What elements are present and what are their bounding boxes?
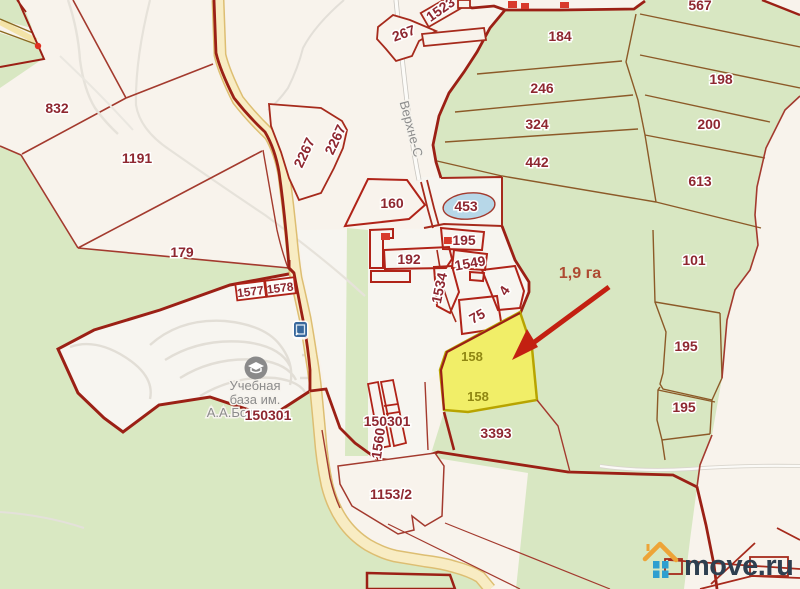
svg-text:184: 184 xyxy=(548,28,572,44)
svg-text:192: 192 xyxy=(397,251,421,267)
svg-text:150301: 150301 xyxy=(245,407,292,423)
svg-text:567: 567 xyxy=(688,0,712,13)
svg-text:1191: 1191 xyxy=(122,150,153,166)
svg-text:move.ru: move.ru xyxy=(684,550,793,582)
svg-text:453: 453 xyxy=(454,198,478,214)
svg-text:150301: 150301 xyxy=(364,413,411,429)
svg-text:179: 179 xyxy=(170,244,194,260)
svg-text:160: 160 xyxy=(380,195,404,211)
svg-text:324: 324 xyxy=(525,116,549,132)
svg-text:1153/2: 1153/2 xyxy=(370,486,412,502)
svg-text:200: 200 xyxy=(697,116,721,132)
svg-text:1,9 га: 1,9 га xyxy=(559,265,601,282)
svg-text:Учебная: Учебная xyxy=(229,378,280,393)
svg-text:158: 158 xyxy=(461,349,483,364)
svg-text:613: 613 xyxy=(688,173,712,189)
svg-text:195: 195 xyxy=(674,338,698,354)
svg-text:198: 198 xyxy=(709,71,733,87)
svg-text:195: 195 xyxy=(672,399,696,415)
svg-text:101: 101 xyxy=(682,252,706,268)
svg-text:3393: 3393 xyxy=(480,425,511,441)
svg-text:158: 158 xyxy=(467,389,489,404)
svg-text:195: 195 xyxy=(452,232,476,248)
svg-text:246: 246 xyxy=(530,80,554,96)
svg-text:442: 442 xyxy=(525,154,549,170)
svg-text:832: 832 xyxy=(45,100,69,116)
